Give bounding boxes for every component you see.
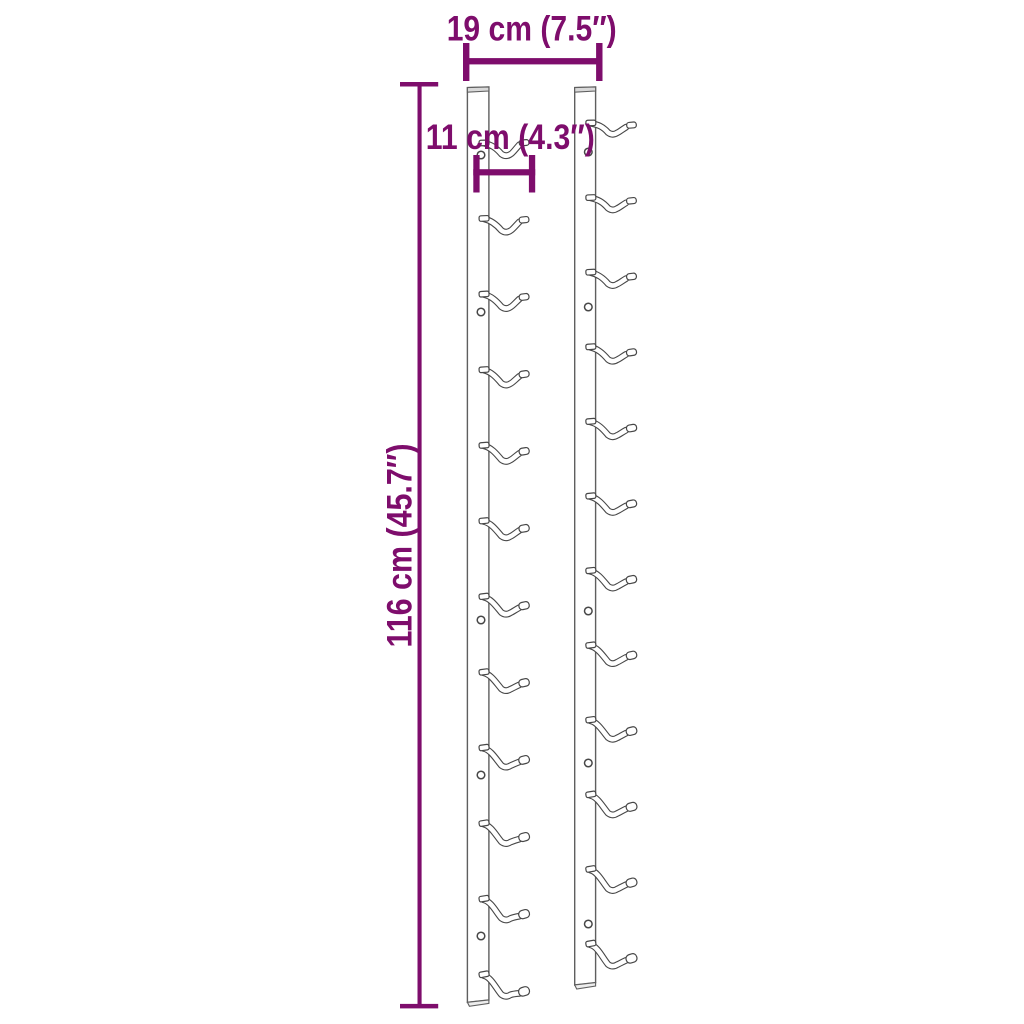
svg-text:116 cm (45.7″): 116 cm (45.7″) (381, 444, 420, 648)
svg-text:19 cm (7.5″): 19 cm (7.5″) (447, 10, 617, 49)
svg-text:11 cm (4.3″): 11 cm (4.3″) (426, 118, 595, 157)
